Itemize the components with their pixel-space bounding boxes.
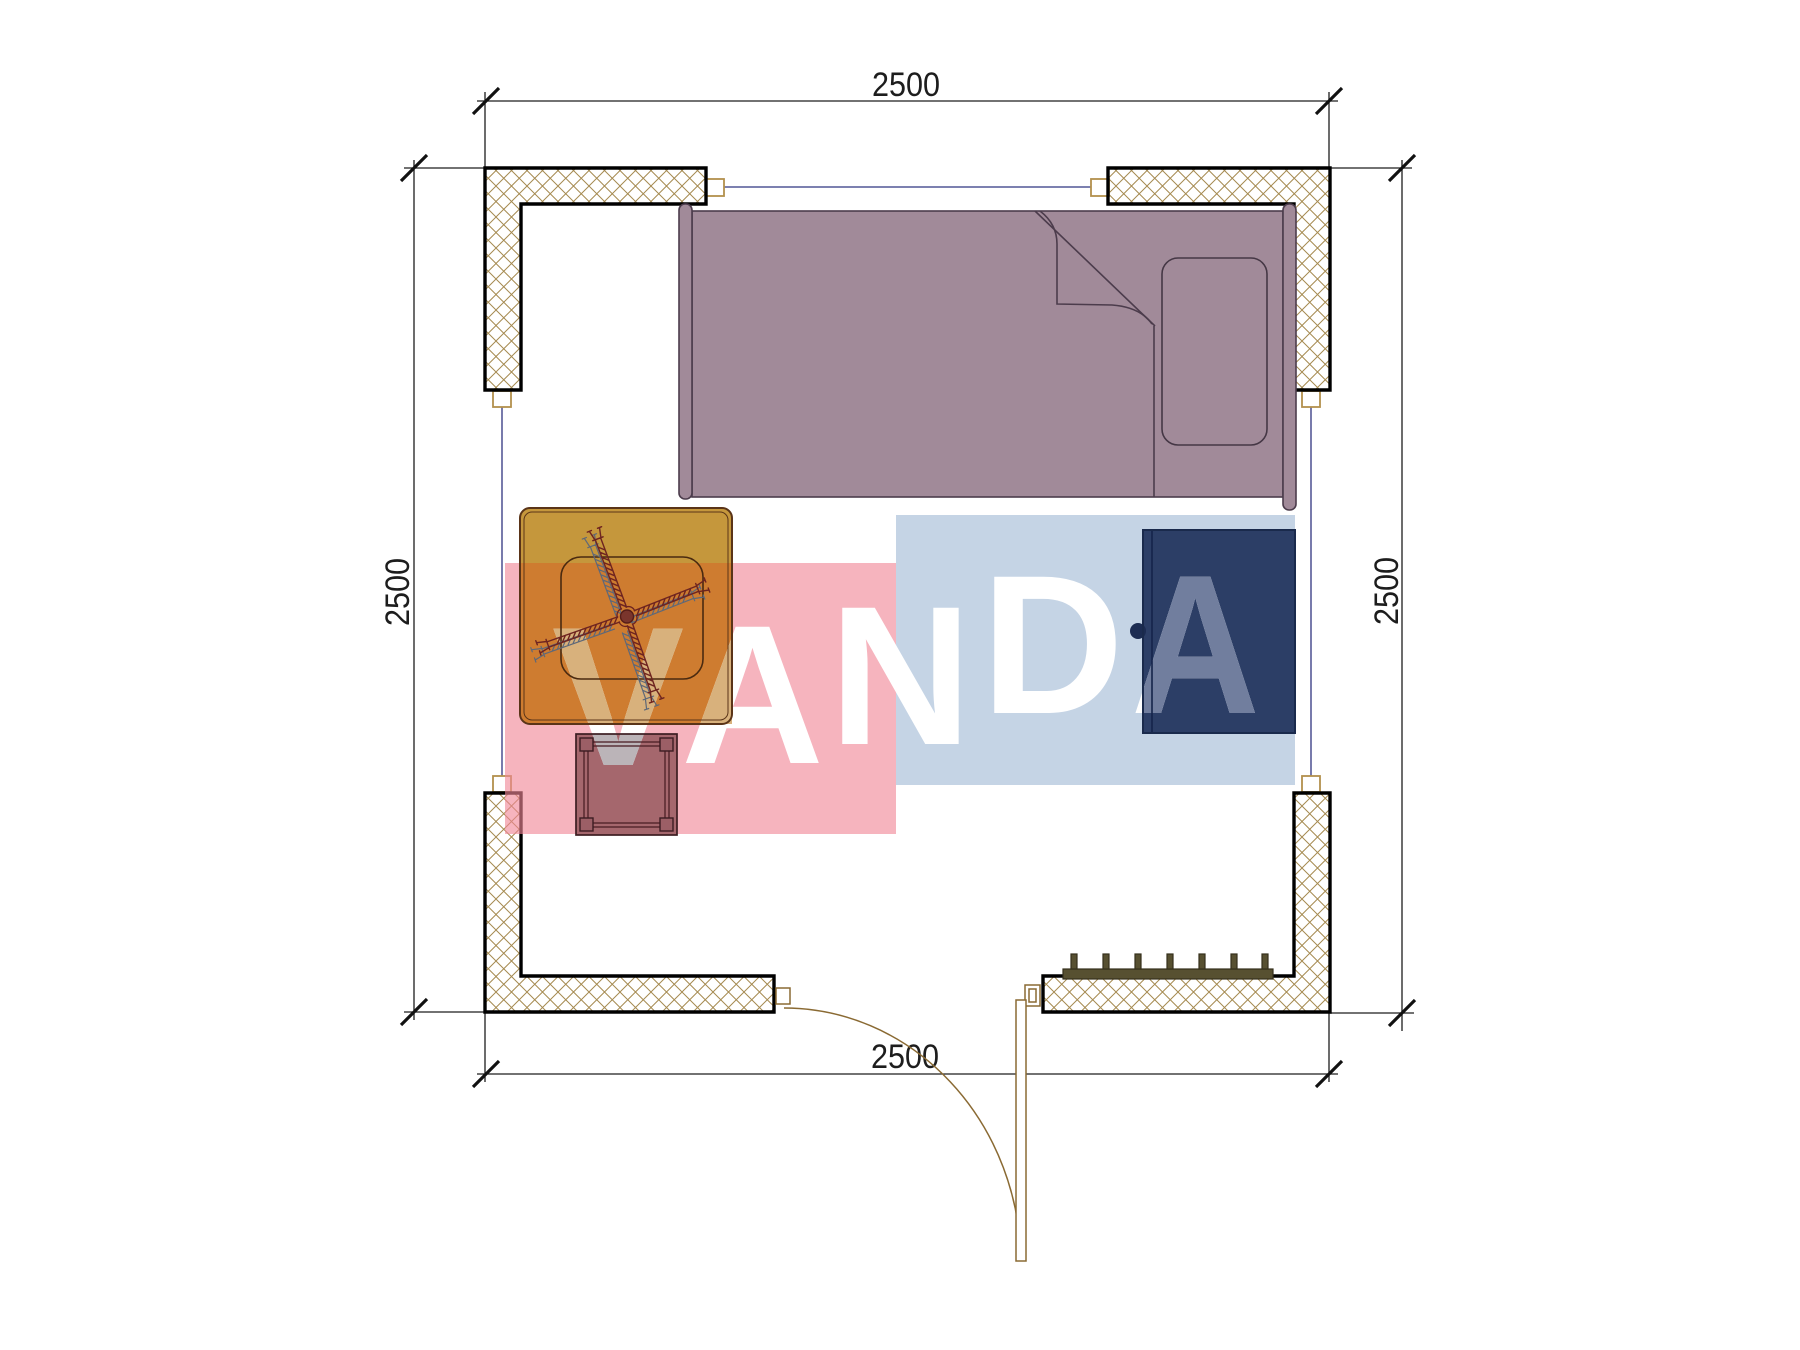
svg-text:2500: 2500	[1368, 557, 1406, 625]
svg-text:2500: 2500	[872, 66, 940, 104]
svg-text:A: A	[1131, 533, 1260, 755]
svg-text:N: N	[829, 565, 972, 786]
svg-text:2500: 2500	[379, 558, 417, 626]
svg-text:D: D	[981, 534, 1124, 755]
